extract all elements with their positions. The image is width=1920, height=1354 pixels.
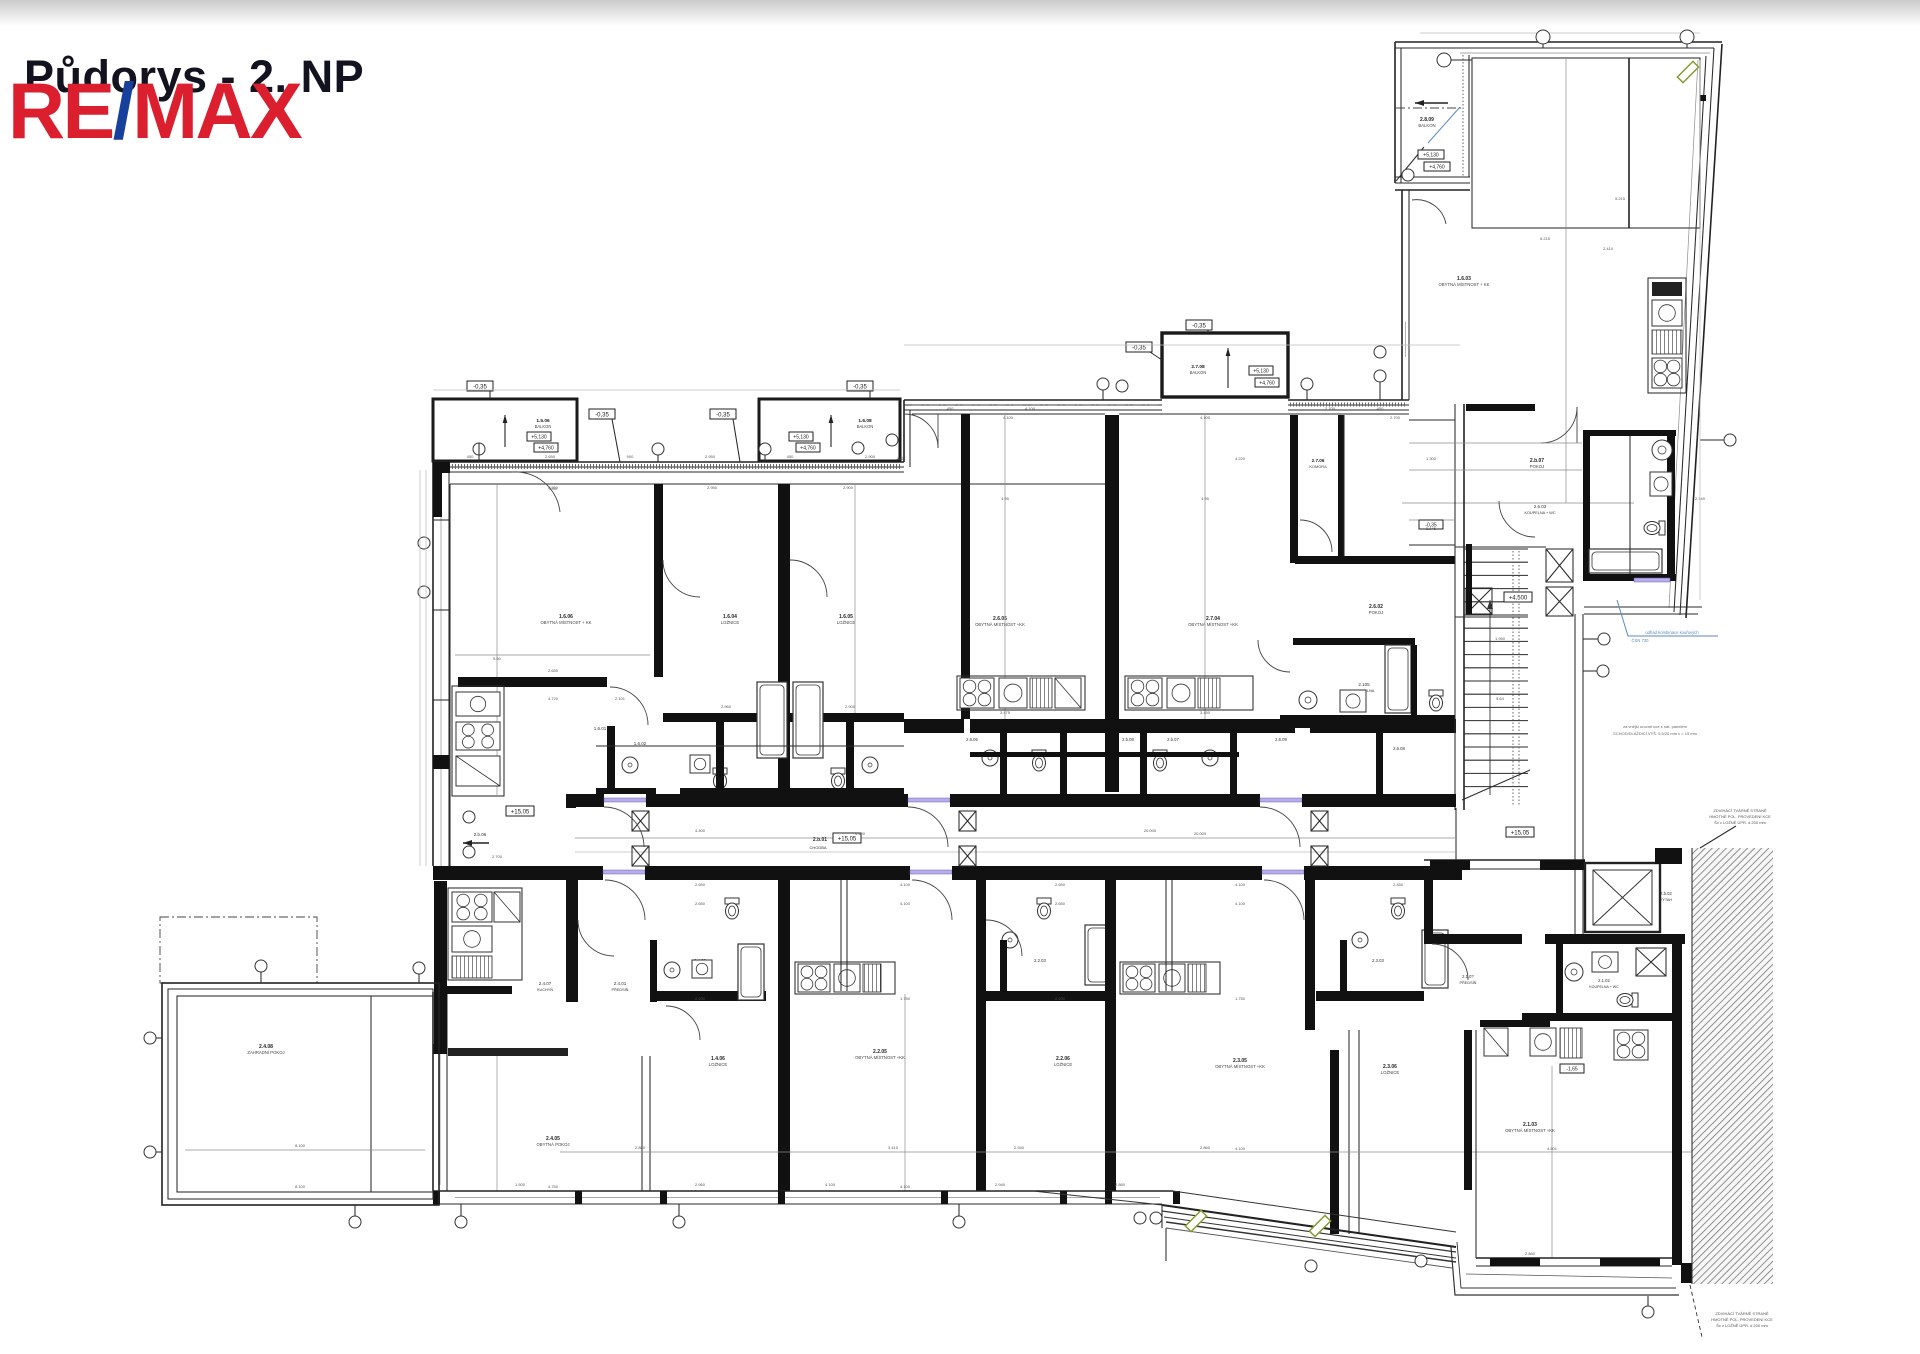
svg-text:2.3.03: 2.3.03 <box>1372 958 1384 963</box>
svg-text:4.100: 4.100 <box>825 1182 836 1187</box>
svg-text:8.100: 8.100 <box>295 1184 306 1189</box>
svg-text:2.860: 2.860 <box>1115 1182 1126 1187</box>
svg-text:2.650: 2.650 <box>1055 882 1066 887</box>
svg-text:2.940: 2.940 <box>995 1182 1006 1187</box>
svg-text:OBYTNÁ MÍSTNOST + KK: OBYTNÁ MÍSTNOST + KK <box>540 620 591 625</box>
svg-text:KUCHYŇ: KUCHYŇ <box>537 987 553 992</box>
svg-text:2.410: 2.410 <box>1603 246 1614 251</box>
svg-text:2.145: 2.145 <box>1426 526 1437 531</box>
svg-text:-0,35: -0,35 <box>595 413 609 419</box>
svg-text:4.720: 4.720 <box>548 696 559 701</box>
svg-text:2.6.06: 2.6.06 <box>966 737 978 742</box>
svg-text:450: 450 <box>947 406 954 411</box>
svg-text:1.950: 1.950 <box>1495 636 1506 641</box>
svg-text:VÝTAH: VÝTAH <box>1660 898 1673 902</box>
svg-text:1.750: 1.750 <box>1235 996 1246 1001</box>
svg-text:2.200: 2.200 <box>695 996 706 1001</box>
svg-text:450: 450 <box>1377 406 1384 411</box>
svg-text:2.650: 2.650 <box>1055 901 1066 906</box>
svg-text:za vnější úrovně kce s nát. pa: za vnější úrovně kce s nát. panelem <box>1623 724 1687 729</box>
svg-text:KOMORA: KOMORA <box>1309 464 1327 469</box>
svg-text:4.100: 4.100 <box>1200 415 1211 420</box>
svg-text:2.700: 2.700 <box>492 854 503 859</box>
svg-text:900: 900 <box>627 454 634 459</box>
svg-text:4.100: 4.100 <box>1003 415 1014 420</box>
svg-text:ZDVIHÁCÍ TVÁRNĚ STRANĚ: ZDVIHÁCÍ TVÁRNĚ STRANĚ <box>1715 1311 1769 1316</box>
svg-text:4.400: 4.400 <box>855 831 866 836</box>
svg-text:-0,35: -0,35 <box>1132 346 1146 352</box>
svg-text:4.100: 4.100 <box>1235 901 1246 906</box>
svg-text:20.000: 20.000 <box>1144 828 1157 833</box>
svg-text:2.b.08: 2.b.08 <box>1122 737 1134 742</box>
svg-text:OBYTNÁ MÍSTNOST +KK: OBYTNÁ MÍSTNOST +KK <box>1188 622 1238 627</box>
svg-text:+15,05: +15,05 <box>511 810 530 816</box>
svg-text:-0,35: -0,35 <box>1192 324 1206 330</box>
svg-text:20.000: 20.000 <box>1194 831 1207 836</box>
svg-text:-0,35: -0,35 <box>853 385 867 391</box>
svg-text:4.400: 4.400 <box>695 828 706 833</box>
svg-text:PŘEDSÍŇ: PŘEDSÍŇ <box>1460 980 1477 985</box>
svg-text:1.6.01: 1.6.01 <box>594 726 607 731</box>
svg-text:2.6.08: 2.6.08 <box>1393 746 1405 751</box>
svg-text:+5,130: +5,130 <box>1423 153 1439 159</box>
svg-text:2.960: 2.960 <box>721 704 732 709</box>
svg-text:OBYTNÁ MÍSTNOST +KK: OBYTNÁ MÍSTNOST +KK <box>855 1055 905 1060</box>
svg-text:2.b.01: 2.b.01 <box>813 837 827 843</box>
svg-text:8.100: 8.100 <box>295 1143 306 1148</box>
svg-text:4.100: 4.100 <box>1235 1146 1246 1151</box>
svg-text:2.860: 2.860 <box>1200 1145 1211 1150</box>
svg-text:2.650: 2.650 <box>695 882 706 887</box>
svg-text:OBYTNÁ MÍSTNOST +KK: OBYTNÁ MÍSTNOST +KK <box>975 622 1025 627</box>
svg-text:2.4.01: 2.4.01 <box>614 981 627 986</box>
svg-text:BALKON: BALKON <box>1418 123 1435 128</box>
svg-text:4.501: 4.501 <box>1547 1146 1558 1151</box>
svg-text:2.950: 2.950 <box>705 454 716 459</box>
svg-text:2.900: 2.900 <box>845 704 856 709</box>
svg-text:5.50: 5.50 <box>493 656 502 661</box>
svg-text:3.410: 3.410 <box>888 1145 899 1150</box>
svg-text:POKOJ: POKOJ <box>1369 610 1383 615</box>
svg-text:4.220: 4.220 <box>1235 456 1246 461</box>
svg-text:2.4.07: 2.4.07 <box>539 981 552 986</box>
svg-text:2.940: 2.940 <box>1014 1145 1025 1150</box>
svg-text:2.6.03: 2.6.03 <box>1534 504 1547 509</box>
svg-text:4.100: 4.100 <box>900 882 911 887</box>
svg-text:+4,500: +4,500 <box>1509 596 1528 602</box>
svg-text:2.340: 2.340 <box>1695 496 1706 501</box>
svg-text:+4,760: +4,760 <box>800 446 816 452</box>
svg-text:2.900: 2.900 <box>865 454 876 459</box>
svg-text:BALKON: BALKON <box>1190 370 1207 375</box>
svg-text:2.860: 2.860 <box>1525 1251 1536 1256</box>
svg-text:4.95: 4.95 <box>1001 496 1010 501</box>
svg-text:2.1.02: 2.1.02 <box>1598 978 1610 983</box>
svg-text:2.650: 2.650 <box>545 454 556 459</box>
svg-text:KOUPELNA + WC: KOUPELNA + WC <box>1524 511 1555 515</box>
svg-text:4.100: 4.100 <box>1235 882 1246 887</box>
svg-text:OBYTNÁ MÍSTNOST + KK: OBYTNÁ MÍSTNOST + KK <box>1438 282 1489 287</box>
svg-text:RE/MAX: RE/MAX <box>8 66 302 155</box>
svg-text:1.500: 1.500 <box>515 1182 526 1187</box>
svg-text:odhad kombinace kouřových: odhad kombinace kouřových <box>1645 630 1699 635</box>
svg-text:SCHOD/DLÁŽDICÍ VÝŠ. 0,5/20 mm: SCHOD/DLÁŽDICÍ VÝŠ. 0,5/20 mm v = 15 mm <box>1613 731 1698 736</box>
svg-text:LOŽNICE: LOŽNICE <box>1381 1070 1400 1075</box>
svg-text:LOŽNICE: LOŽNICE <box>1054 1062 1073 1067</box>
svg-text:1.750: 1.750 <box>900 996 911 1001</box>
svg-text:OBYTNÁ MÍSTNOST +KK: OBYTNÁ MÍSTNOST +KK <box>1505 1128 1555 1133</box>
svg-text:+5,130: +5,130 <box>793 435 809 441</box>
svg-text:POKOJ: POKOJ <box>1530 464 1544 469</box>
svg-text:4.100: 4.100 <box>900 1184 911 1189</box>
svg-text:5.50: 5.50 <box>549 486 558 491</box>
svg-text:2.960: 2.960 <box>695 1182 706 1187</box>
svg-text:+4,760: +4,760 <box>538 446 554 452</box>
svg-text:ZDVIHÁCÍ TVÁRNĚ STRANĚ: ZDVIHÁCÍ TVÁRNĚ STRANĚ <box>1713 808 1767 813</box>
svg-text:4.750: 4.750 <box>548 1184 559 1189</box>
svg-text:2.700: 2.700 <box>1390 415 1401 420</box>
svg-text:+5,130: +5,130 <box>1253 369 1269 375</box>
svg-text:4.95: 4.95 <box>1201 496 1210 501</box>
svg-text:2.650: 2.650 <box>548 668 559 673</box>
svg-text:1.300: 1.300 <box>1426 456 1437 461</box>
svg-text:+15,05: +15,05 <box>1511 831 1530 837</box>
svg-text:+15,05: +15,05 <box>838 837 857 843</box>
svg-text:2.101: 2.101 <box>615 696 626 701</box>
svg-text:2.105: 2.105 <box>1358 682 1370 687</box>
svg-text:ČSN 730: ČSN 730 <box>1632 638 1650 643</box>
svg-text:CHODBA: CHODBA <box>809 845 826 850</box>
svg-text:450: 450 <box>467 454 474 459</box>
svg-text:1.6.02: 1.6.02 <box>634 741 647 746</box>
svg-text:2.2.03: 2.2.03 <box>1034 958 1046 963</box>
svg-text:5.215: 5.215 <box>1615 196 1626 201</box>
svg-text:+5,130: +5,130 <box>531 435 547 441</box>
svg-text:+4,760: +4,760 <box>1259 381 1275 387</box>
svg-text:HMOTNĚ POL. PROVEDENÍ KCE: HMOTNĚ POL. PROVEDENÍ KCE <box>1711 1317 1773 1322</box>
svg-text:2.650: 2.650 <box>695 901 706 906</box>
svg-text:2.900: 2.900 <box>843 485 854 490</box>
svg-text:2.860: 2.860 <box>635 1145 646 1150</box>
svg-text:KOUPELNA + WC: KOUPELNA + WC <box>1589 985 1619 989</box>
svg-text:450: 450 <box>787 454 794 459</box>
svg-text:LOŽNICE: LOŽNICE <box>721 620 740 625</box>
svg-text:2.200: 2.200 <box>1055 996 1066 1001</box>
svg-text:PŘEDSÍŇ: PŘEDSÍŇ <box>612 987 629 992</box>
svg-text:2.950: 2.950 <box>707 485 718 490</box>
svg-text:-1,65: -1,65 <box>1566 1067 1578 1073</box>
svg-text:2.700: 2.700 <box>1325 406 1336 411</box>
svg-text:5.215: 5.215 <box>1540 236 1551 241</box>
svg-text:2.450: 2.450 <box>1393 882 1404 887</box>
svg-text:3.475: 3.475 <box>1000 710 1011 715</box>
svg-text:OBYTNÁ MÍSTNOST +KK: OBYTNÁ MÍSTNOST +KK <box>1215 1064 1265 1069</box>
svg-text:BALKON: BALKON <box>535 424 552 429</box>
svg-text:ZAHRADNÍ POKOJ: ZAHRADNÍ POKOJ <box>247 1050 284 1055</box>
svg-text:LOŽNICE: LOŽNICE <box>709 1062 728 1067</box>
svg-text:HMOTNĚ POL. PROVEDENÍ KCE: HMOTNĚ POL. PROVEDENÍ KCE <box>1709 814 1771 819</box>
svg-text:-0,35: -0,35 <box>473 385 487 391</box>
svg-text:OBYTNÁ POKOJ: OBYTNÁ POKOJ <box>536 1142 569 1147</box>
svg-text:3.450: 3.450 <box>1200 710 1211 715</box>
svg-text:4.100: 4.100 <box>1025 406 1036 411</box>
svg-text:2.7.06: 2.7.06 <box>1312 458 1325 463</box>
svg-text:2.b.06: 2.b.06 <box>474 832 487 837</box>
svg-text:2.b.07: 2.b.07 <box>1167 737 1179 742</box>
svg-text:BALKON: BALKON <box>857 424 874 429</box>
svg-text:LOŽNICE: LOŽNICE <box>837 620 856 625</box>
svg-text:2.b.02: 2.b.02 <box>1660 891 1672 896</box>
svg-text:4.100: 4.100 <box>900 901 911 906</box>
svg-text:5.64: 5.64 <box>1496 696 1505 701</box>
svg-text:Ŝx v LOŽNĚ ÚPR. d 200 mm: Ŝx v LOŽNĚ ÚPR. d 200 mm <box>1716 1323 1768 1328</box>
svg-text:+4,760: +4,760 <box>1429 165 1445 171</box>
svg-text:-0,35: -0,35 <box>716 413 730 419</box>
svg-text:Ŝx v LOŽNĚ ÚPR. d 200 mm: Ŝx v LOŽNĚ ÚPR. d 200 mm <box>1714 820 1766 825</box>
svg-text:2.6.09: 2.6.09 <box>1275 737 1287 742</box>
svg-text:450: 450 <box>897 456 904 461</box>
